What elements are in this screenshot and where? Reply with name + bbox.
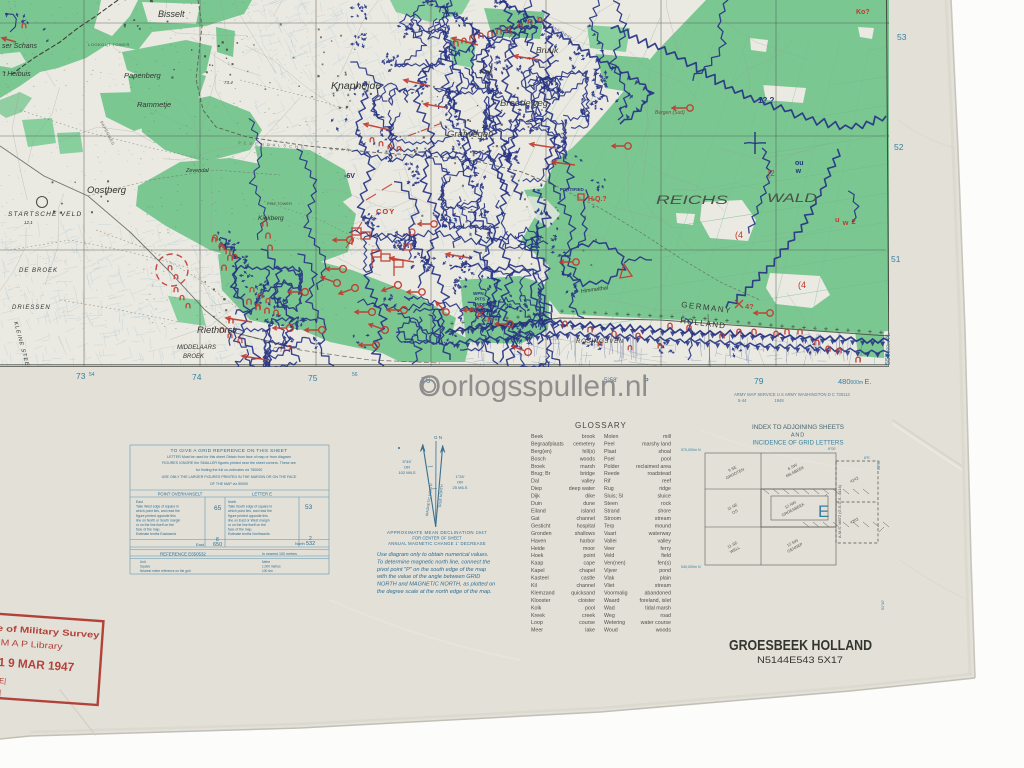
svg-text:APPROXIMATE MEAN DECLINATION: APPROXIMATE MEAN DECLINATION 1947	[387, 530, 487, 535]
svg-text:Klemzand: Klemzand	[531, 591, 555, 597]
svg-text:pond: pond	[659, 568, 671, 574]
svg-text:reclaimed area: reclaimed area	[636, 464, 671, 470]
svg-text:25 MILS: 25 MILS	[453, 485, 468, 490]
svg-text:Veld: Veld	[604, 553, 614, 559]
svg-text:Begraafplaats: Begraafplaats	[531, 441, 564, 447]
svg-text:moor: moor	[583, 546, 595, 552]
svg-text:Bosch: Bosch	[531, 456, 546, 462]
svg-text:dike: dike	[585, 494, 595, 500]
svg-text:woods: woods	[656, 628, 672, 634]
svg-text:Strand: Strand	[604, 509, 620, 515]
svg-text:51°54': 51°54'	[877, 460, 881, 470]
svg-text:line on East or West margin: line on East or West margin	[228, 518, 270, 522]
svg-text:STARTSCHE VELD: STARTSCHE VELD	[8, 211, 82, 218]
svg-text:tidal marsh: tidal marsh	[645, 605, 671, 611]
svg-text:bridge: bridge	[580, 471, 595, 477]
svg-text:LETTER E: LETTER E	[252, 492, 272, 497]
svg-text:To determine magnetic north: To determine magnetic north line, connec…	[377, 559, 490, 565]
svg-text:channel: channel	[576, 516, 595, 522]
svg-text:Broek: Broek	[531, 464, 545, 470]
svg-text:(4: (4	[798, 280, 806, 290]
svg-text:course: course	[579, 620, 595, 626]
svg-text:point: point	[584, 553, 596, 559]
svg-text:Klooster: Klooster	[531, 598, 551, 604]
svg-text:East: East	[136, 500, 143, 504]
svg-text:cloister: cloister	[578, 598, 595, 604]
svg-text:OF THE MAP viz 50000: OF THE MAP viz 50000	[210, 482, 248, 486]
svg-text:AND: AND	[791, 433, 805, 439]
svg-text:53: 53	[305, 504, 313, 511]
svg-text:-6V: -6V	[344, 173, 355, 180]
svg-text:creek: creek	[582, 613, 595, 619]
svg-text:(4: (4	[735, 230, 743, 240]
svg-text:MIDDELAARS: MIDDELAARS	[177, 345, 216, 351]
svg-text:1? ?: 1? ?	[758, 96, 775, 105]
svg-text:North: North	[228, 500, 236, 504]
svg-text:Kaap: Kaap	[531, 561, 543, 567]
svg-text:foreland, islet: foreland, islet	[639, 598, 671, 604]
svg-text:ROSINGSVEN: ROSINGSVEN	[576, 339, 624, 345]
svg-text:sluice: sluice	[657, 494, 671, 500]
svg-text:Voormalig: Voormalig	[604, 591, 628, 597]
svg-text:Bruuk: Bruuk	[536, 45, 559, 55]
svg-text:the degree scale at the n: the degree scale at the north edge of th…	[377, 589, 492, 595]
svg-text:WALD: WALD	[767, 193, 817, 205]
svg-text:65: 65	[214, 505, 222, 512]
svg-text:channel: channel	[576, 583, 595, 589]
svg-text:FIGURES IGNORE the SMALLER fi: FIGURES IGNORE the SMALLER figures print…	[162, 461, 296, 465]
svg-text:75: 75	[308, 373, 318, 383]
svg-text:5°45': 5°45'	[402, 459, 411, 464]
svg-text:650: 650	[213, 542, 222, 548]
svg-text:face of the map.: face of the map.	[136, 528, 160, 532]
svg-text:Vallei: Vallei	[604, 538, 617, 544]
svg-text:FIRE TOWER: FIRE TOWER	[267, 201, 292, 206]
svg-text:Dal: Dal	[531, 479, 539, 485]
svg-text:Woud: Woud	[604, 628, 618, 634]
svg-text:REFERENCE E650532: REFERENCE E650532	[160, 552, 206, 557]
svg-text:reef: reef	[662, 479, 672, 485]
svg-text:102 MILS: 102 MILS	[398, 470, 415, 475]
svg-text:Rammetje: Rammetje	[137, 100, 171, 109]
svg-text:pivot point "P" on the so: pivot point "P" on the south edge of the…	[376, 567, 486, 573]
svg-text:56: 56	[352, 372, 358, 378]
svg-text:Plaat: Plaat	[604, 449, 617, 455]
svg-text:1°26': 1°26'	[455, 474, 464, 479]
svg-text:Square: Square	[140, 565, 151, 569]
svg-text:Vlak: Vlak	[604, 576, 615, 582]
svg-text:100 Am: 100 Am	[262, 569, 273, 573]
svg-text:shallows: shallows	[575, 531, 596, 537]
svg-text:Oostberg: Oostberg	[87, 185, 127, 196]
svg-text:Duin: Duin	[531, 501, 542, 507]
svg-text:Unit: Unit	[140, 560, 146, 564]
svg-text:OGUE|: OGUE|	[0, 675, 6, 686]
svg-text:550000m N.: 550000m N.	[885, 332, 892, 365]
svg-text:with the value of the ang: with the value of the angle between GRID	[377, 574, 480, 580]
svg-text:Kiekberg: Kiekberg	[258, 215, 284, 222]
svg-text:570,000m N: 570,000m N	[681, 448, 701, 452]
svg-text:Meer: Meer	[531, 628, 543, 634]
svg-text:Vijver: Vijver	[604, 568, 617, 574]
svg-text:Eiland: Eiland	[531, 509, 546, 515]
svg-text:shoal: shoal	[658, 449, 671, 455]
svg-text:NORTH and MAGNETIC NORTH,: NORTH and MAGNETIC NORTH, as plotted on	[377, 582, 495, 588]
svg-text:Kasteel: Kasteel	[531, 576, 549, 582]
svg-text:abandoned: abandoned	[644, 591, 671, 597]
svg-text:ferry: ferry	[660, 546, 671, 552]
svg-text:East: East	[196, 542, 205, 547]
svg-text:532: 532	[306, 541, 315, 547]
svg-text:Bisselt: Bisselt	[158, 9, 185, 19]
svg-text:road: road	[660, 613, 671, 619]
svg-text:Papenberg: Papenberg	[124, 71, 162, 80]
svg-text:rock: rock	[661, 501, 671, 507]
svg-text:Gesticht: Gesticht	[531, 523, 551, 529]
svg-text:Brug; Br: Brug; Br	[531, 471, 551, 477]
svg-text:Kolk: Kolk	[531, 605, 542, 611]
svg-text:figure printed opposite this: figure printed opposite this	[228, 514, 268, 518]
svg-text:pool: pool	[661, 456, 671, 462]
svg-text:Poel: Poel	[604, 456, 615, 462]
svg-text:which point lies, and read the: which point lies, and read the	[228, 509, 272, 513]
svg-text:Steen: Steen	[604, 501, 618, 507]
svg-text:brook: brook	[582, 434, 596, 440]
svg-text:540,000m N: 540,000m N	[681, 565, 701, 569]
svg-text:Use diagram only to obtain: Use diagram only to obtain numerical val…	[377, 552, 489, 558]
svg-text:marsh: marsh	[580, 464, 595, 470]
svg-text:pool: pool	[585, 605, 595, 611]
svg-text:BROEK: BROEK	[183, 354, 205, 360]
svg-text:mound: mound	[655, 523, 671, 529]
svg-text:Kapel: Kapel	[531, 568, 545, 574]
svg-text:GROESBEEK HOLLAND: GROESBEEK HOLLAND	[729, 637, 872, 654]
svg-text:woods: woods	[580, 456, 596, 462]
svg-text:Riethorst: Riethorst	[197, 325, 235, 336]
svg-text:marshy land: marshy land	[642, 441, 671, 447]
svg-text:73: 73	[76, 371, 86, 381]
svg-text:Breedeweg: Breedeweg	[500, 98, 549, 109]
svg-text:REICHS: REICHS	[656, 195, 729, 207]
svg-text:Rug: Rug	[604, 486, 614, 492]
svg-text:51°40': 51°40'	[881, 600, 885, 610]
svg-text:island: island	[581, 509, 595, 515]
svg-text:chapel: chapel	[579, 568, 595, 574]
svg-text:LETTER Must be used for this: LETTER Must be used for this sheet Obtai…	[167, 455, 291, 459]
svg-text:Berg(en): Berg(en)	[531, 449, 552, 455]
svg-text:for finding the full co-ordina: for finding the full co-ordinates viz 75…	[196, 468, 263, 472]
svg-text:or on the line itself on the: or on the line itself on the	[136, 523, 174, 527]
svg-text:DE BROEK: DE BROEK	[19, 268, 58, 274]
svg-text:INCIDENCE OF GRID LETTERS: INCIDENCE OF GRID LETTERS	[753, 440, 844, 447]
svg-text:Estimate tenths Northwards: Estimate tenths Northwards	[228, 532, 270, 536]
svg-text:harbor: harbor	[580, 538, 596, 544]
svg-text:Take South edge of square in: Take South edge of square in	[228, 505, 272, 509]
svg-text:DRIESSEN: DRIESSEN	[12, 305, 51, 311]
svg-text:deep water: deep water	[569, 486, 595, 492]
svg-text:stream: stream	[655, 516, 672, 522]
svg-text:Reede: Reede	[604, 471, 620, 477]
svg-text:Nearest metre reference on the: Nearest metre reference on the grid	[140, 569, 191, 573]
svg-text:Vaart: Vaart	[604, 531, 617, 537]
svg-text:plain: plain	[660, 576, 671, 582]
svg-text:Loop: Loop	[531, 620, 543, 626]
svg-text:Ko?: Ko?	[856, 9, 870, 16]
svg-text:FORTIFIED: FORTIFIED	[560, 187, 584, 192]
svg-text:dune: dune	[583, 501, 595, 507]
svg-text:Hoek: Hoek	[531, 553, 544, 559]
svg-text:'t Heibuis: 't Heibuis	[2, 71, 31, 78]
svg-text:COY: COY	[376, 207, 395, 216]
svg-text:∩∩?: ∩∩?	[272, 344, 293, 355]
svg-text:cemetery: cemetery	[573, 441, 595, 447]
svg-text:TO GIVE A GRID REFERENCE ON TH: TO GIVE A GRID REFERENCE ON THIS SHEET	[170, 448, 287, 454]
svg-text:73.4: 73.4	[224, 80, 233, 85]
svg-text:Knapheide: Knapheide	[331, 80, 381, 92]
svg-text:E: E	[818, 502, 829, 521]
svg-text:hospital: hospital	[577, 523, 595, 529]
svg-text:ridge: ridge	[659, 486, 671, 492]
svg-text:valley: valley	[657, 538, 671, 544]
svg-text:6°00': 6°00'	[828, 447, 836, 451]
svg-text:1,000 metres: 1,000 metres	[262, 565, 281, 569]
svg-text:51: 51	[891, 254, 901, 264]
svg-text:figure printed opposite this: figure printed opposite this	[136, 514, 176, 518]
svg-text:ANNUAL MAGNETIC CHANGE 1' DECR: ANNUAL MAGNETIC CHANGE 1' DECREASE	[388, 541, 486, 546]
svg-text:?: ?	[508, 31, 513, 40]
svg-text:OR: OR	[457, 480, 463, 485]
svg-text:cape: cape	[584, 561, 596, 567]
svg-text:or on the line itself on the: or on the line itself on the	[228, 523, 266, 527]
svg-text:LOOKOUT TOWER: LOOKOUT TOWER	[88, 42, 130, 47]
svg-text:In nearest 100 metres: In nearest 100 metres	[262, 552, 297, 556]
svg-text:Sluis; Sl: Sluis; Sl	[604, 494, 623, 500]
svg-text:[2: [2	[768, 169, 775, 178]
svg-text:quicksand: quicksand	[571, 591, 595, 597]
svg-text:Kil: Kil	[531, 583, 537, 589]
svg-text:Waard: Waard	[604, 598, 619, 604]
svg-text:OR: OR	[404, 465, 410, 470]
svg-text:Take West edge of square in: Take West edge of square in	[136, 505, 179, 509]
svg-text:line on North or South margin: line on North or South margin	[136, 518, 180, 522]
svg-text:FOR CENTER OF SHEET: FOR CENTER OF SHEET	[412, 536, 462, 541]
svg-text:Klok: Klok	[480, 69, 493, 76]
svg-text:Diep: Diep	[531, 486, 542, 492]
svg-text:53: 53	[897, 32, 907, 42]
svg-text:Beek: Beek	[531, 434, 543, 440]
svg-text:Gronden: Gronden	[531, 531, 552, 537]
svg-text:Peel: Peel	[604, 441, 615, 447]
svg-text:water course: water course	[641, 620, 671, 626]
svg-text:ser Schans: ser Schans	[2, 43, 38, 50]
svg-text:waterway: waterway	[649, 531, 672, 537]
svg-text:hill(s): hill(s)	[582, 449, 595, 455]
svg-text:Ven(nen): Ven(nen)	[604, 561, 626, 567]
svg-text:30: 30	[505, 304, 512, 310]
svg-text:Estimate tenths Eastwards: Estimate tenths Eastwards	[136, 532, 176, 536]
svg-text:6°E: 6°E	[864, 456, 870, 460]
svg-text:stream: stream	[655, 583, 672, 589]
svg-text:4?: 4?	[745, 302, 754, 311]
svg-text:Gat: Gat	[531, 516, 540, 522]
svg-text:Wad: Wad	[604, 605, 615, 611]
svg-text:H.Q.?: H.Q.?	[588, 196, 607, 203]
svg-text:valley: valley	[581, 479, 595, 485]
svg-text:Wetering: Wetering	[604, 620, 625, 626]
svg-text:Metre: Metre	[262, 560, 270, 564]
svg-text:Stroom: Stroom	[604, 516, 622, 522]
svg-text:Heide: Heide	[531, 546, 545, 552]
svg-text:Rif: Rif	[604, 479, 611, 485]
svg-text:Dijk: Dijk	[531, 494, 540, 500]
svg-text:12.1: 12.1	[24, 220, 33, 225]
svg-text:Weg: Weg	[604, 613, 615, 619]
svg-text:N5144E543 5X17: N5144E543 5X17	[757, 655, 843, 666]
svg-text:Veer: Veer	[604, 546, 615, 552]
svg-text:shore: shore	[658, 509, 671, 515]
svg-text:castle: castle	[581, 576, 595, 582]
svg-text:Kreek: Kreek	[531, 613, 545, 619]
svg-text:INDEX TO ADJOINING SHEETS: INDEX TO ADJOINING SHEETS	[752, 424, 844, 431]
svg-text:Molen: Molen	[604, 434, 618, 440]
svg-text:fen(s): fen(s)	[657, 561, 671, 567]
svg-text:Vliet: Vliet	[604, 583, 615, 589]
svg-text:Haven: Haven	[531, 538, 546, 544]
svg-text:which point lies, and read the: which point lies, and read the	[136, 509, 180, 513]
svg-text:North: North	[295, 541, 305, 546]
svg-text:face of the map.: face of the map.	[228, 528, 252, 532]
svg-text:USE ONLY THE LARGER FIGURES PR: USE ONLY THE LARGER FIGURES PRINTED IN T…	[162, 475, 297, 479]
svg-text:52: 52	[894, 142, 904, 152]
svg-text:79: 79	[754, 376, 764, 386]
svg-text:54: 54	[89, 372, 95, 378]
svg-text:Oorlogsspullen.nl: Oorlogsspullen.nl	[418, 370, 648, 403]
svg-text:mill: mill	[663, 434, 671, 440]
svg-text:A.M.S. M872 (G.S.G.S. 4414): A.M.S. M872 (G.S.G.S. 4414)	[837, 484, 842, 538]
svg-text:roadstead: roadstead	[647, 471, 671, 477]
svg-text:Grafwegen: Grafwegen	[447, 129, 493, 140]
svg-text:GLOSSARY: GLOSSARY	[575, 421, 627, 430]
svg-text:G N: G N	[434, 435, 442, 440]
svg-text:field: field	[661, 553, 671, 559]
svg-text:Zevendal: Zevendal	[185, 168, 209, 174]
svg-text:74: 74	[192, 372, 202, 382]
svg-text:Polder: Polder	[604, 464, 620, 470]
svg-text:Terp: Terp	[604, 523, 614, 529]
svg-text:POINT OVERHANSELT: POINT OVERHANSELT	[158, 492, 203, 497]
svg-text:lake: lake	[585, 628, 595, 634]
svg-text:Bergen (Sud): Bergen (Sud)	[655, 110, 685, 116]
